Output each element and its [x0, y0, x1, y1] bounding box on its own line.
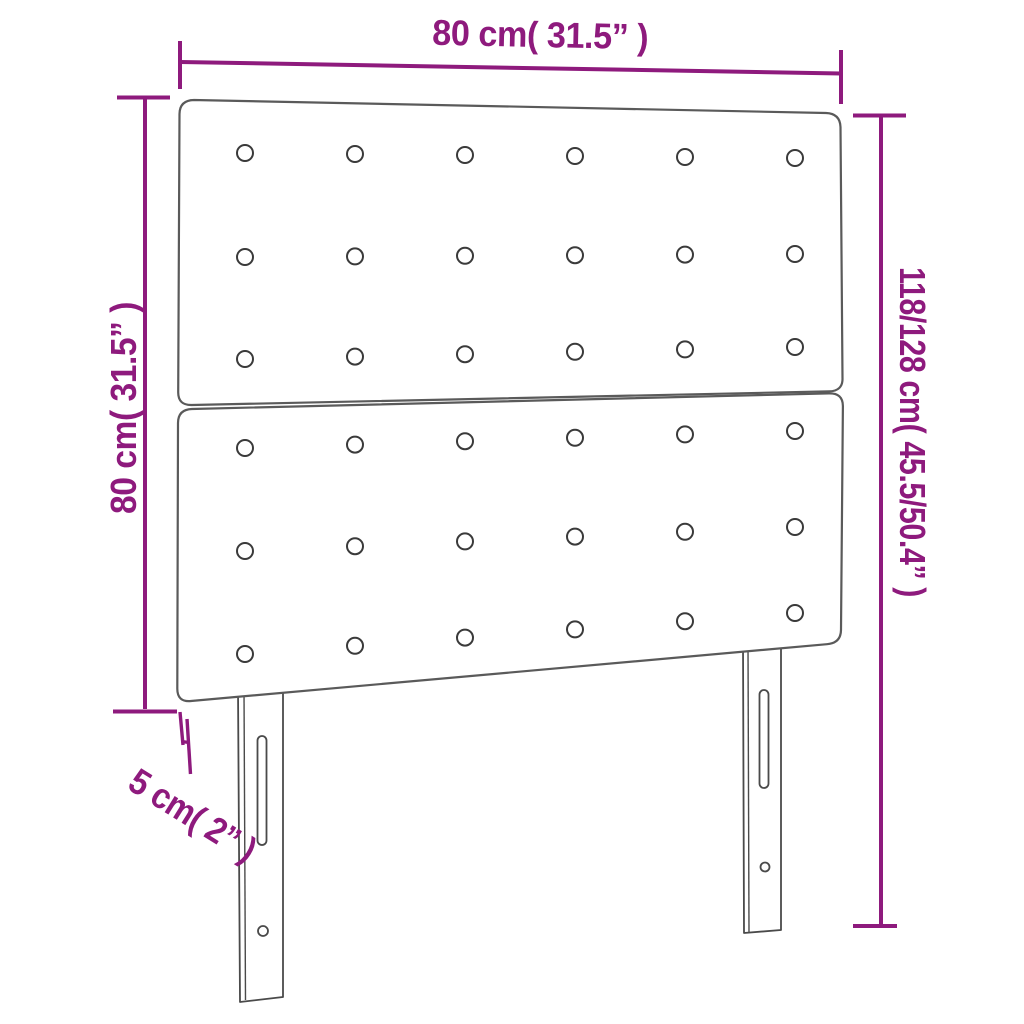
width-dimension-line [180, 62, 841, 74]
tufting-button [237, 145, 253, 161]
tufting-button [567, 247, 583, 263]
headboard-legs [238, 640, 781, 1002]
tufting-button [457, 346, 473, 362]
headboard-dimension-diagram: 80 cm( 31.5” ) 80 cm( 31.5” ) 118/128 cm… [0, 0, 1024, 1024]
upper-panel [178, 100, 842, 405]
tufting-button [787, 423, 803, 439]
tufting-button [237, 249, 253, 265]
tufting-button [677, 524, 693, 540]
tufting-button [787, 150, 803, 166]
tufting-button [347, 538, 363, 554]
depth-connector [182, 742, 190, 743]
tufting-button [237, 543, 253, 559]
tufting-button [677, 341, 693, 357]
tufting-button [457, 433, 473, 449]
tufting-button [567, 430, 583, 446]
tufting-button [237, 646, 253, 662]
right-leg-hole [761, 863, 770, 872]
tufting-button [237, 440, 253, 456]
tufting-button [457, 533, 473, 549]
headboard-panels [177, 100, 843, 701]
tufting-button [347, 248, 363, 264]
tufting-button [567, 529, 583, 545]
tufting-button [787, 339, 803, 355]
tufting-button [457, 147, 473, 163]
tufting-button [347, 437, 363, 453]
tufting-button [457, 630, 473, 646]
height-left-label: 80 cm( 31.5” ) [103, 302, 144, 514]
tufting-button [677, 247, 693, 263]
tufting-button [787, 605, 803, 621]
tufting-button [567, 621, 583, 637]
left-leg-slot [258, 736, 267, 845]
dimension-height-right: 118/128 cm( 45.5/50.4” ) [853, 115, 933, 926]
right-leg-edge-line [748, 644, 749, 932]
tufting-button [567, 148, 583, 164]
tufting-button [347, 349, 363, 365]
left-leg-hole [258, 926, 268, 936]
tufting-button [347, 638, 363, 654]
height-right-label: 118/128 cm( 45.5/50.4” ) [892, 267, 933, 597]
tufting-button [787, 519, 803, 535]
tufting-button [567, 344, 583, 360]
dimension-height-left: 80 cm( 31.5” ) [103, 97, 177, 712]
right-leg-slot [760, 690, 769, 788]
tufting-button [677, 426, 693, 442]
depth-tick-front [187, 719, 191, 774]
tufting-button [677, 149, 693, 165]
width-top-label: 80 cm( 31.5” ) [432, 12, 649, 58]
tufting-button [787, 246, 803, 262]
dimension-width-top: 80 cm( 31.5” ) [180, 12, 841, 104]
tufting-button [237, 351, 253, 367]
tufting-button [457, 248, 473, 264]
tufting-button [347, 146, 363, 162]
tufting-button [677, 613, 693, 629]
diagram-canvas: 80 cm( 31.5” ) 80 cm( 31.5” ) 118/128 cm… [0, 0, 1024, 1024]
